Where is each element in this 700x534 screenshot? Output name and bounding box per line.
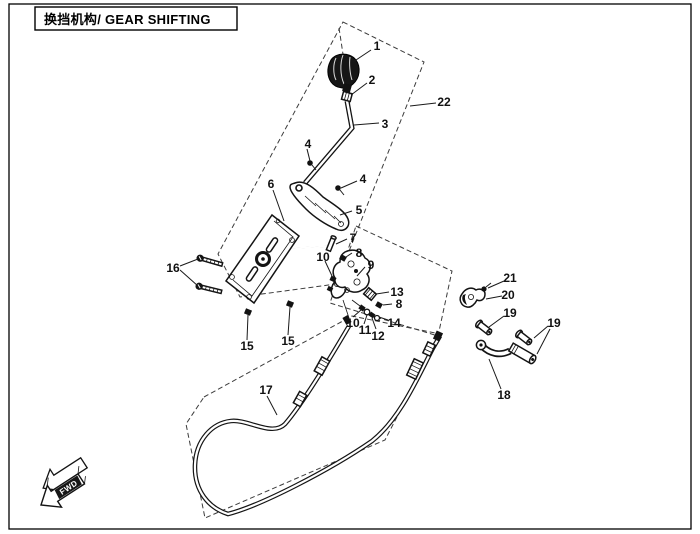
part-15-nut	[244, 308, 252, 316]
callout-7: 7	[350, 231, 357, 245]
part-15-nut	[286, 300, 294, 308]
part-16-bolt	[195, 282, 223, 295]
callout-15-a: 15	[240, 339, 254, 353]
callout-4-b: 4	[360, 172, 367, 186]
cable-fitting-icon	[314, 357, 330, 375]
part-4-bolt	[335, 185, 344, 195]
callout-19-a: 19	[503, 306, 517, 320]
callout-8-a: 8	[356, 246, 363, 260]
part-17-shift-cable	[195, 315, 443, 514]
part-1-shift-knob	[328, 54, 359, 93]
callout-19-b: 19	[547, 316, 561, 330]
gear-shifting-diagram: 换挡机构/ GEAR SHIFTING	[0, 0, 700, 534]
dashed-region-cable	[186, 316, 440, 518]
callout-1: 1	[374, 39, 381, 53]
part-2-knob-nut	[341, 91, 352, 101]
callout-9: 9	[368, 258, 375, 272]
fwd-direction-marker: FWD	[27, 452, 97, 516]
callout-20: 20	[501, 288, 515, 302]
callout-10-b: 10	[316, 250, 330, 264]
cable-fitting-icon	[423, 342, 435, 356]
callout-15-b: 15	[281, 334, 295, 348]
part-14-washer	[375, 316, 380, 321]
callout-5: 5	[356, 203, 363, 217]
part-19-pin	[474, 319, 493, 336]
callouts: 1 2 3 22 4 4 5 6 7 8 9 13 8 14 12 11 10 …	[166, 39, 561, 402]
callout-18: 18	[497, 388, 511, 402]
title-block: 换挡机构/ GEAR SHIFTING	[35, 7, 237, 30]
part-13-adjuster-nut	[364, 288, 377, 301]
page-title: 换挡机构/ GEAR SHIFTING	[44, 12, 211, 27]
part-11-washer	[364, 309, 370, 315]
part-8-nut	[375, 301, 383, 309]
callout-2: 2	[369, 73, 376, 87]
diagram-page: 换挡机构/ GEAR SHIFTING	[0, 0, 700, 534]
callout-3: 3	[382, 117, 389, 131]
part-19-pin	[514, 329, 533, 346]
callout-17: 17	[259, 383, 273, 397]
callout-14: 14	[387, 316, 401, 330]
callout-22: 22	[437, 95, 451, 109]
callout-10-a: 10	[346, 316, 360, 330]
part-4-bolt	[307, 160, 316, 170]
callout-21: 21	[503, 271, 517, 285]
callout-12: 12	[371, 329, 385, 343]
part-20-bracket	[460, 288, 485, 307]
callout-8-b: 8	[396, 297, 403, 311]
cable-fitting-icon	[293, 391, 306, 406]
leader-lines	[180, 50, 550, 415]
callout-4-a: 4	[305, 137, 312, 151]
callout-11: 11	[359, 323, 372, 337]
callout-16: 16	[166, 261, 180, 275]
dashed-regions	[186, 22, 452, 518]
part-3-lever-rod	[305, 101, 352, 183]
callout-6: 6	[268, 177, 275, 191]
